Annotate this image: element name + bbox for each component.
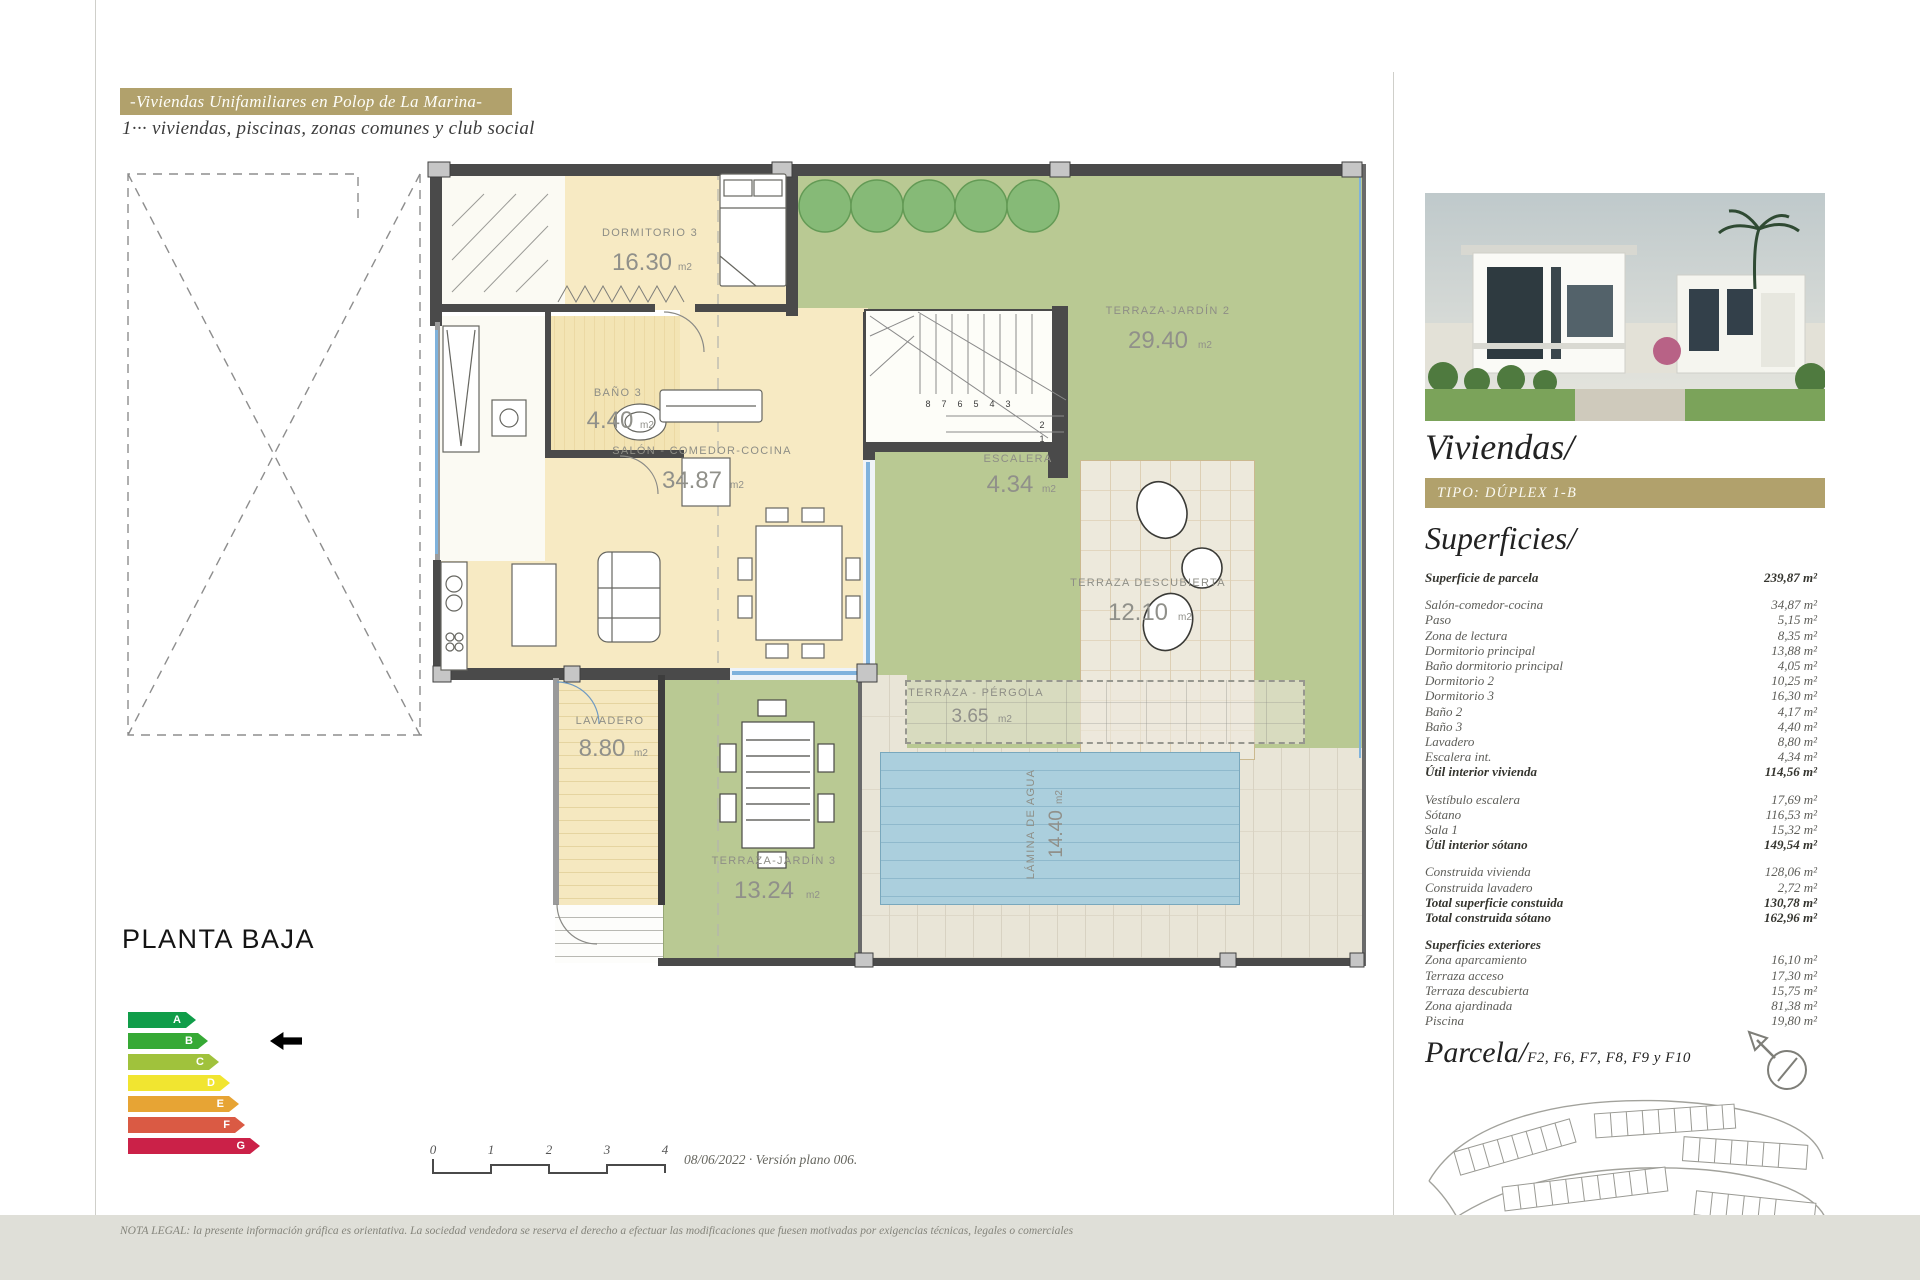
energy-marker xyxy=(270,1032,302,1050)
room-unit: m2 xyxy=(640,420,654,431)
room-area: 34.87 xyxy=(662,467,722,494)
superficies-row: Superficie de parcela239,87 m² xyxy=(1425,570,1817,585)
superficies-label: Baño dormitorio principal xyxy=(1425,658,1563,673)
superficies-label: Dormitorio principal xyxy=(1425,643,1535,658)
stair-number: 2 xyxy=(1039,420,1044,430)
sideboard xyxy=(660,390,762,422)
page-left-border xyxy=(95,0,96,1215)
energy-bar-b: B xyxy=(128,1033,208,1049)
stair-number: 3 xyxy=(1005,399,1010,409)
villa-right xyxy=(1677,275,1805,373)
stair-number: 7 xyxy=(941,399,946,409)
superficies-label: Dormitorio 3 xyxy=(1425,688,1494,703)
room-area: 12.10 xyxy=(1108,599,1168,626)
superficies-value: 16,10 m² xyxy=(1771,952,1817,967)
superficies-row: Total construida sótano162,96 m² xyxy=(1425,910,1817,925)
superficies-value: 16,30 m² xyxy=(1771,688,1817,703)
superficies-row: Dormitorio principal13,88 m² xyxy=(1425,643,1817,658)
scale-tick: 2 xyxy=(543,1142,555,1158)
superficies-label: Superficies exteriores xyxy=(1425,937,1541,952)
garden-trees xyxy=(799,180,1059,232)
energy-row: C xyxy=(128,1054,260,1070)
superficies-value: 5,15 m² xyxy=(1778,612,1817,627)
stair-number: 8 xyxy=(925,399,930,409)
tipo-banner: TIPO: DÚPLEX 1-B xyxy=(1425,478,1825,508)
superficies-section: Superficies exterioresZona aparcamiento1… xyxy=(1425,937,1817,1028)
superficies-row: Escalera int.4,34 m² xyxy=(1425,749,1817,764)
superficies-section: Vestíbulo escalera17,69 m²Sótano116,53 m… xyxy=(1425,792,1817,853)
room-name: TERRAZA-JARDÍN 3 xyxy=(712,854,837,867)
scale-tick: 3 xyxy=(601,1142,613,1158)
room-area: 4.40 xyxy=(587,407,634,434)
superficies-value: 34,87 m² xyxy=(1771,597,1817,612)
superficies-value: 149,54 m² xyxy=(1764,837,1817,852)
superficies-title: Superficies/ xyxy=(1425,520,1576,557)
superficies-value: 8,80 m² xyxy=(1778,734,1817,749)
superficies-value: 2,72 m² xyxy=(1778,880,1817,895)
room-name: TERRAZA - PÉRGOLA xyxy=(908,686,1044,699)
superficies-row: Paso5,15 m² xyxy=(1425,612,1817,627)
kitchen-island xyxy=(512,564,556,646)
scale-bar: 0 1 2 3 4 xyxy=(430,1142,690,1178)
room-name: LÁMINA DE AGUA xyxy=(1024,769,1037,880)
legal-bar: NOTA LEGAL: la presente información gráf… xyxy=(0,1215,1920,1280)
stair-number: 5 xyxy=(973,399,978,409)
energy-letter: F xyxy=(223,1119,230,1131)
dining-table xyxy=(738,508,860,658)
plan-title: PLANTA BAJA xyxy=(122,924,315,955)
superficies-value: 162,96 m² xyxy=(1764,910,1817,925)
room-area: 14.40 xyxy=(1046,810,1067,858)
superficies-row: Terraza descubierta15,75 m² xyxy=(1425,983,1817,998)
superficies-value: 17,30 m² xyxy=(1771,968,1817,983)
superficies-label: Lavadero xyxy=(1425,734,1474,749)
superficies-label: Zona aparcamiento xyxy=(1425,952,1527,967)
room-unit: m2 xyxy=(1042,484,1056,495)
superficies-row: Dormitorio 210,25 m² xyxy=(1425,673,1817,688)
energy-bar-d: D xyxy=(128,1075,230,1091)
room-unit: m2 xyxy=(730,480,744,491)
superficies-section: Construida vivienda128,06 m²Construida l… xyxy=(1425,864,1817,925)
scale-tick: 1 xyxy=(485,1142,497,1158)
energy-row: F xyxy=(128,1117,260,1133)
energy-bar-c: C xyxy=(128,1054,219,1070)
superficies-label: Sótano xyxy=(1425,807,1461,822)
superficies-row: Zona ajardinada81,38 m² xyxy=(1425,998,1817,1013)
superficies-value: 17,69 m² xyxy=(1771,792,1817,807)
superficies-label: Paso xyxy=(1425,612,1451,627)
superficies-label: Dormitorio 2 xyxy=(1425,673,1494,688)
room-area: 4.34 xyxy=(987,471,1034,498)
room-unit: m2 xyxy=(1054,790,1065,804)
superficies-row: Sala 115,32 m² xyxy=(1425,822,1817,837)
room-area: 13.24 xyxy=(734,877,794,904)
superficies-row: Dormitorio 316,30 m² xyxy=(1425,688,1817,703)
project-subtitle: 1··· viviendas, piscinas, zonas comunes … xyxy=(122,118,535,140)
superficies-row: Zona aparcamiento16,10 m² xyxy=(1425,952,1817,967)
garden-table xyxy=(720,700,834,868)
room-area: 8.80 xyxy=(579,735,626,762)
room-name: SALÓN - COMEDOR-COCINA xyxy=(612,444,792,457)
superficies-table: Superficie de parcela239,87 m²Salón-come… xyxy=(1425,570,1817,1040)
energy-letter: G xyxy=(236,1140,245,1152)
room-unit: m2 xyxy=(634,748,648,759)
bougainvillea xyxy=(1653,337,1681,365)
superficies-label: Escalera int. xyxy=(1425,749,1491,764)
superficies-row: Útil interior vivienda114,56 m² xyxy=(1425,764,1817,779)
version-note: 08/06/2022 · Versión plano 006. xyxy=(684,1152,857,1168)
room-unit: m2 xyxy=(806,890,820,901)
walls xyxy=(428,162,1366,967)
energy-row: G xyxy=(128,1138,260,1154)
villa-left xyxy=(1461,245,1637,373)
superficies-value: 114,56 m² xyxy=(1765,764,1817,779)
room-unit: m2 xyxy=(1198,340,1212,351)
superficies-value: 130,78 m² xyxy=(1764,895,1817,910)
superficies-row: Sótano116,53 m² xyxy=(1425,807,1817,822)
superficies-row: Superficies exteriores xyxy=(1425,937,1817,952)
superficies-row: Zona de lectura8,35 m² xyxy=(1425,628,1817,643)
superficies-row: Construida vivienda128,06 m² xyxy=(1425,864,1817,879)
superficies-label: Construida lavadero xyxy=(1425,880,1533,895)
terrace-paving xyxy=(1575,389,1685,421)
sidebar-divider xyxy=(1393,72,1394,1215)
stair-number: 1 xyxy=(1039,434,1044,444)
superficies-value: 128,06 m² xyxy=(1765,864,1817,879)
terrace-chairs xyxy=(1128,474,1222,658)
superficies-section: Salón-comedor-cocina34,87 m²Paso5,15 m²Z… xyxy=(1425,597,1817,779)
superficies-value: 19,80 m² xyxy=(1771,1013,1817,1028)
energy-row: B xyxy=(128,1033,260,1049)
superficies-label: Superficie de parcela xyxy=(1425,570,1538,585)
scale-tick: 0 xyxy=(427,1142,439,1158)
room-name: DORMITORIO 3 xyxy=(602,227,698,239)
superficies-label: Total superficie constuida xyxy=(1425,895,1563,910)
superficies-value: 239,87 m² xyxy=(1764,570,1817,585)
superficies-value: 81,38 m² xyxy=(1771,998,1817,1013)
room-area: 29.40 xyxy=(1128,327,1188,354)
superficies-label: Salón-comedor-cocina xyxy=(1425,597,1543,612)
superficies-label: Piscina xyxy=(1425,1013,1464,1028)
superficies-row: Salón-comedor-cocina34,87 m² xyxy=(1425,597,1817,612)
floor-plan-drawing: 8 7 6 5 4 3 2 1 xyxy=(120,160,1370,970)
room-name: LAVADERO xyxy=(576,715,645,727)
toilet xyxy=(492,400,526,436)
superficies-label: Baño 3 xyxy=(1425,719,1462,734)
energy-letter: B xyxy=(185,1035,193,1047)
room-name: BAÑO 3 xyxy=(594,386,642,399)
property-photo xyxy=(1425,193,1825,421)
energy-letter: E xyxy=(217,1098,224,1110)
room-name: TERRAZA-JARDÍN 2 xyxy=(1106,304,1231,317)
scale-tick: 4 xyxy=(659,1142,671,1158)
sofa xyxy=(598,552,660,642)
superficies-label: Zona ajardinada xyxy=(1425,998,1512,1013)
energy-row: E xyxy=(128,1096,260,1112)
parcela-refs: F2, F6, F7, F8, F9 y F10 xyxy=(1527,1050,1691,1066)
superficies-row: Total superficie constuida130,78 m² xyxy=(1425,895,1817,910)
parcel-dashed-boundary xyxy=(128,174,422,735)
superficies-row: Baño 34,40 m² xyxy=(1425,719,1817,734)
superficies-row: Construida lavadero2,72 m² xyxy=(1425,880,1817,895)
superficies-row: Baño 24,17 m² xyxy=(1425,704,1817,719)
superficies-row: Útil interior sótano149,54 m² xyxy=(1425,837,1817,852)
superficies-value: 8,35 m² xyxy=(1778,628,1817,643)
superficies-label: Sala 1 xyxy=(1425,822,1458,837)
energy-letter: C xyxy=(196,1056,204,1068)
bed xyxy=(720,174,786,286)
parcela-heading: Parcela/F2, F6, F7, F8, F9 y F10 xyxy=(1425,1036,1691,1070)
room-unit: m2 xyxy=(998,714,1012,725)
superficies-value: 10,25 m² xyxy=(1771,673,1817,688)
superficies-label: Baño 2 xyxy=(1425,704,1462,719)
energy-letter: D xyxy=(207,1077,215,1089)
superficies-row: Lavadero8,80 m² xyxy=(1425,734,1817,749)
superficies-value: 4,40 m² xyxy=(1778,719,1817,734)
shower xyxy=(443,326,479,452)
energy-bar-a: A xyxy=(128,1012,196,1028)
superficies-row: Terraza acceso17,30 m² xyxy=(1425,968,1817,983)
energy-bar-g: G xyxy=(128,1138,260,1154)
room-unit: m2 xyxy=(678,262,692,273)
parcela-title: Parcela/ xyxy=(1425,1036,1527,1069)
stair-number: 6 xyxy=(957,399,962,409)
energy-row: A xyxy=(128,1012,260,1028)
room-name: TERRAZA DESCUBIERTA xyxy=(1070,577,1226,589)
energy-row: D xyxy=(128,1075,260,1091)
superficies-label: Construida vivienda xyxy=(1425,864,1531,879)
energy-bar-e: E xyxy=(128,1096,239,1112)
superficies-value: 116,53 m² xyxy=(1766,807,1817,822)
legal-note: NOTA LEGAL: la presente información gráf… xyxy=(120,1225,1073,1237)
superficies-label: Útil interior vivienda xyxy=(1425,764,1537,779)
energy-letter: A xyxy=(173,1014,181,1026)
energy-chart: ABCDEFG xyxy=(128,1012,260,1159)
superficies-value: 13,88 m² xyxy=(1771,643,1817,658)
superficies-label: Zona de lectura xyxy=(1425,628,1507,643)
room-unit: m2 xyxy=(1178,612,1192,623)
room-name: ESCALERA xyxy=(983,453,1052,465)
plan-sheet: -Viviendas Unifamiliares en Polop de La … xyxy=(0,0,1920,1280)
superficies-value: 15,75 m² xyxy=(1771,983,1817,998)
superficies-value: 4,34 m² xyxy=(1778,749,1817,764)
superficies-value: 4,05 m² xyxy=(1778,658,1817,673)
kitchen-counter xyxy=(441,562,467,670)
closet-hatch xyxy=(452,194,684,302)
room-area: 16.30 xyxy=(612,249,672,276)
superficies-value: 4,17 m² xyxy=(1778,704,1817,719)
energy-bar-f: F xyxy=(128,1117,245,1133)
sidebar-title: Viviendas/ xyxy=(1425,426,1574,468)
superficies-label: Terraza acceso xyxy=(1425,968,1504,983)
superficies-row: Piscina19,80 m² xyxy=(1425,1013,1817,1028)
superficies-value: 15,32 m² xyxy=(1771,822,1817,837)
room-area: 3.65 xyxy=(952,706,989,727)
superficies-label: Terraza descubierta xyxy=(1425,983,1529,998)
superficies-label: Vestíbulo escalera xyxy=(1425,792,1520,807)
superficies-row: Vestíbulo escalera17,69 m² xyxy=(1425,792,1817,807)
superficies-label: Total construida sótano xyxy=(1425,910,1551,925)
superficies-row: Baño dormitorio principal4,05 m² xyxy=(1425,658,1817,673)
project-banner: -Viviendas Unifamiliares en Polop de La … xyxy=(120,88,512,115)
superficies-label: Útil interior sótano xyxy=(1425,837,1528,852)
superficies-section: Superficie de parcela239,87 m² xyxy=(1425,570,1817,585)
stair-number: 4 xyxy=(989,399,994,409)
scale-bar-steps xyxy=(430,1157,674,1177)
